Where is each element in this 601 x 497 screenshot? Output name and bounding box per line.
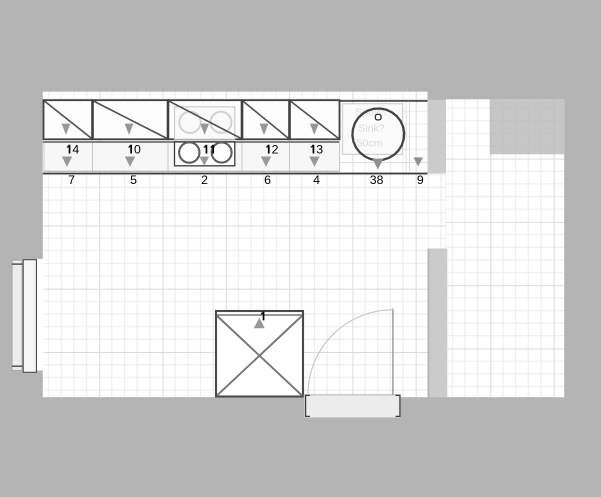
svg-text:0: 0 (134, 143, 141, 157)
svg-text:4: 4 (313, 173, 320, 187)
svg-text:5: 5 (130, 173, 137, 187)
svg-text:50cm: 50cm (357, 138, 383, 150)
svg-text:9: 9 (417, 173, 424, 187)
svg-text:38: 38 (370, 173, 384, 187)
svg-text:4: 4 (72, 143, 79, 157)
svg-text:3: 3 (316, 143, 323, 157)
svg-text:2: 2 (201, 173, 208, 187)
svg-text:2: 2 (272, 143, 279, 157)
svg-text:6: 6 (264, 173, 271, 187)
svg-text:7: 7 (68, 173, 75, 187)
svg-text:Sink?: Sink? (358, 123, 384, 135)
